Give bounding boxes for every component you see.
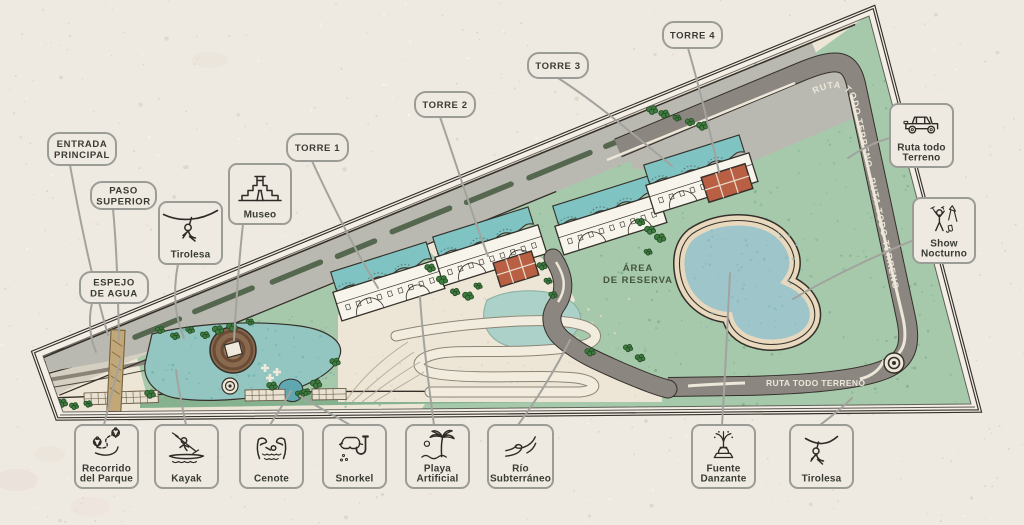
svg-text:Kayak: Kayak xyxy=(171,474,202,485)
svg-text:ESPEJO: ESPEJO xyxy=(93,277,135,288)
svg-text:Subterráneo: Subterráneo xyxy=(490,474,551,485)
svg-text:DE AGUA: DE AGUA xyxy=(90,288,138,299)
svg-text:Snorkel: Snorkel xyxy=(335,474,373,485)
svg-text:Artificial: Artificial xyxy=(416,474,458,485)
svg-text:DE RESERVA: DE RESERVA xyxy=(603,275,673,286)
svg-text:ÁREA: ÁREA xyxy=(623,263,654,274)
svg-text:TORRE 1: TORRE 1 xyxy=(295,143,340,154)
svg-text:Nocturno: Nocturno xyxy=(921,249,967,260)
svg-text:TORRE 2: TORRE 2 xyxy=(422,100,467,111)
svg-text:ENTRADA: ENTRADA xyxy=(57,139,108,150)
svg-text:PASO: PASO xyxy=(109,185,138,196)
svg-text:Tirolesa: Tirolesa xyxy=(802,474,842,485)
svg-text:Cenote: Cenote xyxy=(254,474,289,485)
svg-text:Tirolesa: Tirolesa xyxy=(171,250,211,261)
svg-text:Terreno: Terreno xyxy=(903,153,941,164)
svg-text:TORRE 4: TORRE 4 xyxy=(670,30,715,41)
svg-text:Danzante: Danzante xyxy=(700,474,746,485)
svg-text:PRINCIPAL: PRINCIPAL xyxy=(54,150,110,161)
svg-text:RUTA TODO TERRENO: RUTA TODO TERRENO xyxy=(766,378,865,388)
svg-text:SUPERIOR: SUPERIOR xyxy=(96,196,150,207)
svg-text:Museo: Museo xyxy=(244,210,277,221)
svg-text:del Parque: del Parque xyxy=(80,474,133,485)
svg-text:TORRE 3: TORRE 3 xyxy=(535,61,580,72)
